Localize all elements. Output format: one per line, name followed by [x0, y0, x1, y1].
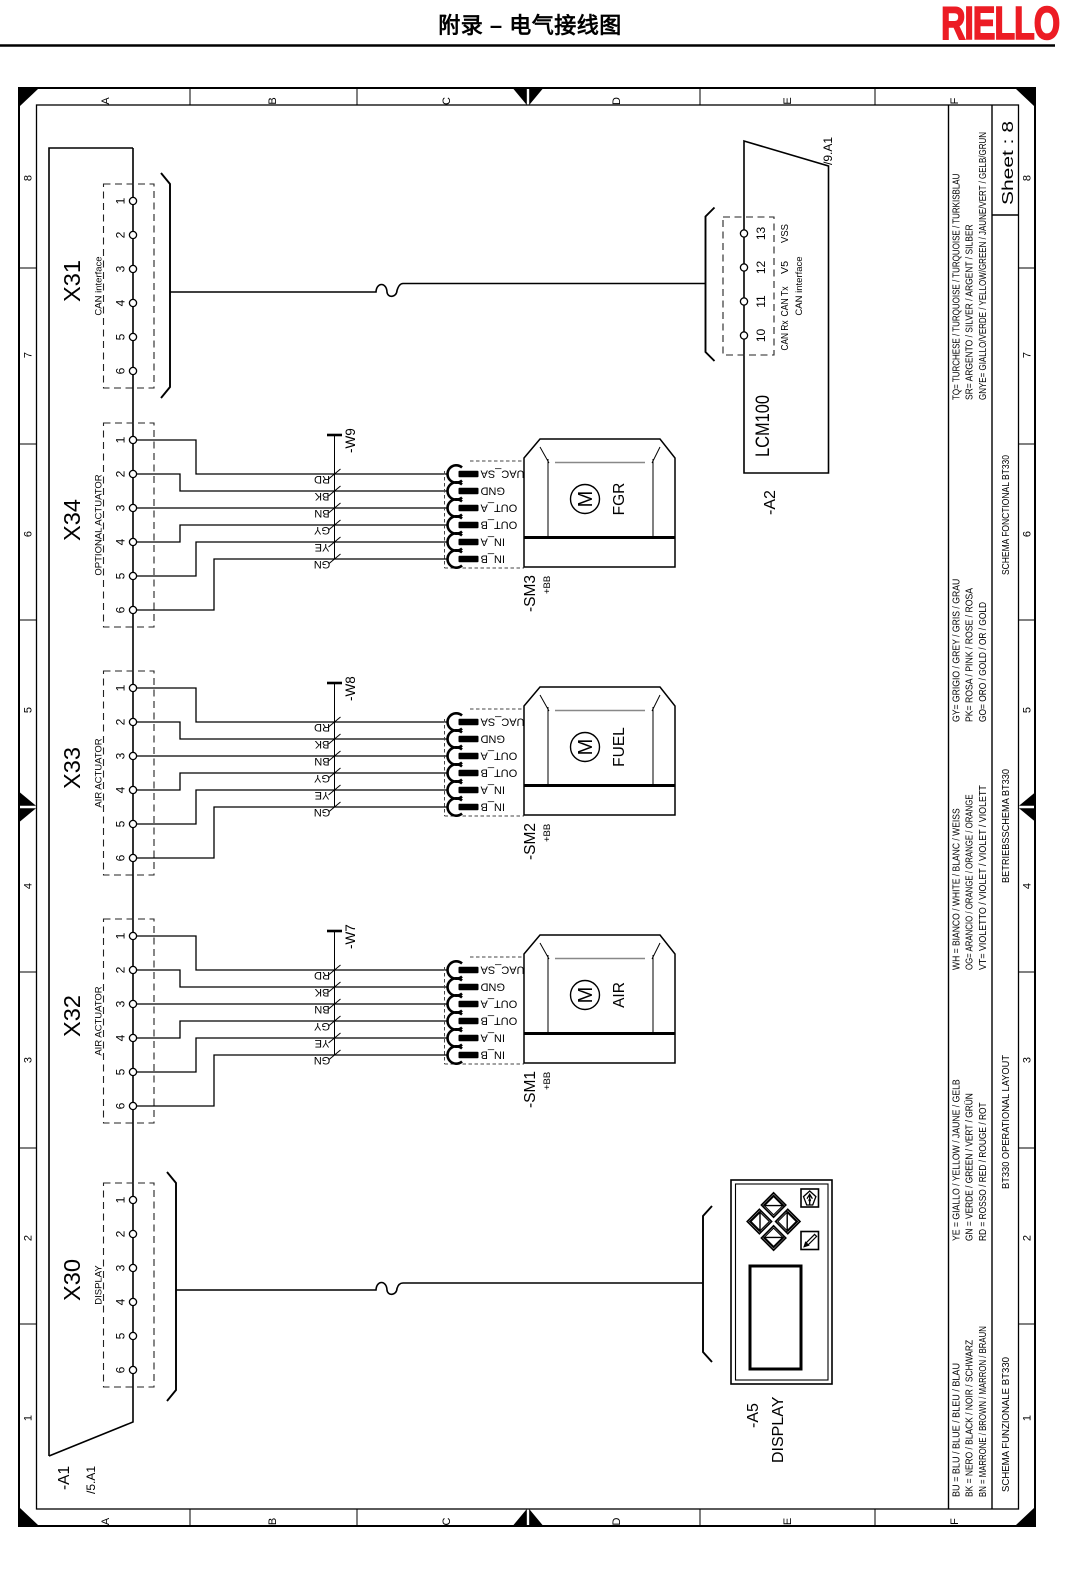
svg-text:M: M: [575, 987, 597, 1004]
svg-text:-SM2: -SM2: [522, 823, 539, 860]
svg-text:X31: X31: [59, 260, 85, 302]
svg-text:YE: YE: [315, 541, 330, 553]
svg-text:GN = VERDE / GREEN / VERT / GR: GN = VERDE / GREEN / VERT / GRÜN: [964, 1093, 976, 1241]
svg-text:5: 5: [114, 1332, 128, 1339]
svg-text:BT330 OPERATIONAL LAYOUT: BT330 OPERATIONAL LAYOUT: [1000, 1054, 1012, 1189]
svg-text:WH = BIANCO / WHITE / BLANC /: WH = BIANCO / WHITE / BLANC / WEISS: [952, 808, 963, 970]
svg-text:GN: GN: [314, 1054, 331, 1066]
svg-text:GND: GND: [480, 733, 505, 745]
svg-text:1: 1: [114, 436, 128, 443]
svg-text:5: 5: [23, 707, 35, 713]
svg-text:BU = BLU / BLUE / BLEU / BLAU: BU = BLU / BLUE / BLEU / BLAU: [952, 1363, 963, 1497]
svg-text:OUT_B: OUT_B: [481, 1015, 518, 1027]
svg-text:4: 4: [114, 299, 128, 306]
svg-text:11: 11: [754, 295, 768, 308]
svg-text:DISPLAY: DISPLAY: [770, 1396, 787, 1463]
svg-text:IN_B: IN_B: [481, 553, 505, 565]
svg-text:-SM3: -SM3: [522, 575, 539, 612]
svg-text:IN_B: IN_B: [481, 1049, 505, 1061]
svg-text:-SM1: -SM1: [522, 1071, 539, 1108]
svg-text:6: 6: [114, 606, 128, 613]
svg-text:3: 3: [114, 504, 128, 511]
svg-text:GND: GND: [480, 981, 505, 993]
svg-text:2: 2: [114, 966, 128, 973]
svg-text:2: 2: [114, 1230, 128, 1237]
svg-text:GY= GRIGIO / GREY / GRIS / GRA: GY= GRIGIO / GREY / GRIS / GRAU: [952, 579, 963, 722]
svg-text:5: 5: [114, 572, 128, 579]
svg-text:8: 8: [1022, 175, 1034, 181]
svg-text:12: 12: [754, 261, 768, 275]
svg-text:D: D: [611, 97, 623, 105]
svg-text:BK: BK: [314, 738, 329, 750]
svg-text:OUT_A: OUT_A: [480, 750, 517, 762]
svg-text:3: 3: [114, 752, 128, 759]
svg-text:2: 2: [114, 470, 128, 477]
svg-text:E: E: [782, 97, 794, 104]
svg-text:8: 8: [23, 175, 35, 181]
svg-text:-A5: -A5: [745, 1403, 762, 1428]
svg-text:GY: GY: [313, 1020, 330, 1032]
svg-text:+BB: +BB: [542, 576, 553, 594]
svg-text:5: 5: [114, 820, 128, 827]
svg-text:IN_A: IN_A: [480, 784, 505, 796]
svg-text:1: 1: [23, 1415, 35, 1421]
svg-text:Sheet : 8: Sheet : 8: [1000, 121, 1017, 205]
svg-text:IN_A: IN_A: [480, 536, 505, 548]
svg-text:B: B: [267, 1518, 279, 1525]
svg-text:OUT_B: OUT_B: [481, 519, 518, 531]
svg-text:4: 4: [114, 538, 128, 545]
svg-text:10: 10: [754, 329, 768, 343]
svg-text:VT= VIOLETTO / VIOLET / VIOLET: VT= VIOLETTO / VIOLET / VIOLET / VIOLETT: [978, 785, 989, 970]
svg-text:VSS: VSS: [779, 224, 791, 243]
svg-text:M: M: [575, 491, 597, 508]
svg-text:X30: X30: [59, 1259, 85, 1301]
svg-text:SCHEMA FONCTIONAL BT330: SCHEMA FONCTIONAL BT330: [1000, 455, 1012, 575]
svg-text:1: 1: [114, 684, 128, 691]
svg-text:F: F: [949, 1518, 961, 1525]
svg-text:GO= ORO / GOLD / OR / GOLD: GO= ORO / GOLD / OR / GOLD: [978, 602, 989, 722]
svg-text:-A1: -A1: [56, 1466, 73, 1490]
svg-text:5: 5: [114, 333, 128, 340]
svg-text:SR= ARGENTO / SILVER / ARGENT: SR= ARGENTO / SILVER / ARGENT / SILBER: [965, 224, 976, 400]
svg-text:X34: X34: [59, 499, 85, 541]
svg-text:GY: GY: [313, 772, 330, 784]
svg-text:GN: GN: [314, 806, 331, 818]
svg-text:GNYE= GIALLO/VERDE / YELLOW/GR: GNYE= GIALLO/VERDE / YELLOW/GREEN / JAUN…: [978, 132, 989, 400]
svg-text:13: 13: [754, 227, 768, 241]
svg-text:X33: X33: [59, 747, 85, 789]
svg-text:RD: RD: [314, 473, 330, 485]
svg-text:1: 1: [114, 197, 128, 204]
svg-text:UAC_SA: UAC_SA: [480, 964, 525, 976]
svg-text:6: 6: [1022, 531, 1034, 537]
svg-text:-W8: -W8: [343, 676, 358, 701]
svg-text:6: 6: [114, 367, 128, 374]
svg-text:OUT_B: OUT_B: [481, 767, 518, 779]
svg-text:6: 6: [114, 1366, 128, 1373]
svg-text:6: 6: [114, 854, 128, 861]
svg-text:-A2: -A2: [762, 490, 779, 515]
svg-text:IN_A: IN_A: [480, 1032, 505, 1044]
svg-text:6: 6: [23, 531, 35, 537]
svg-text:5: 5: [114, 1068, 128, 1075]
svg-text:BN: BN: [314, 507, 329, 519]
svg-text:UAC_SA: UAC_SA: [480, 716, 525, 728]
svg-text:7: 7: [1022, 352, 1034, 358]
svg-text:AIR ACTUATOR: AIR ACTUATOR: [94, 738, 105, 807]
svg-text:OUT_A: OUT_A: [480, 998, 517, 1010]
svg-text:+BB: +BB: [542, 824, 553, 842]
svg-text:CAN interface: CAN interface: [794, 256, 805, 315]
svg-text:A: A: [100, 97, 112, 105]
svg-text:AIR: AIR: [611, 982, 628, 1008]
svg-text:1: 1: [114, 932, 128, 939]
svg-text:GY: GY: [313, 524, 330, 536]
svg-text:BK: BK: [314, 490, 329, 502]
svg-text:-W7: -W7: [343, 924, 358, 949]
svg-text:BN = MARRONE / BROWN / MARRON: BN = MARRONE / BROWN / MARRON / BRAUN: [978, 1326, 989, 1497]
svg-text:OPTIONAL ACTUATOR: OPTIONAL ACTUATOR: [94, 474, 105, 575]
svg-text:2: 2: [114, 718, 128, 725]
svg-text:/5.A1: /5.A1: [84, 1466, 98, 1494]
svg-text:+BB: +BB: [542, 1072, 553, 1090]
svg-text:/9.A1: /9.A1: [821, 137, 835, 165]
svg-text:-W9: -W9: [343, 428, 358, 453]
svg-text:6: 6: [114, 1102, 128, 1109]
svg-text:IN_B: IN_B: [481, 801, 505, 813]
svg-text:RD: RD: [314, 721, 330, 733]
svg-text:3: 3: [1022, 1057, 1034, 1063]
svg-text:7: 7: [23, 352, 35, 358]
svg-text:RD = ROSSO / RED / ROUGE / ROT: RD = ROSSO / RED / ROUGE / ROT: [978, 1102, 989, 1241]
svg-text:BK: BK: [314, 986, 329, 998]
svg-text:X32: X32: [59, 995, 85, 1037]
svg-text:YE: YE: [315, 1037, 330, 1049]
svg-text:BK = NERO / BLACK / NOIR / SCH: BK = NERO / BLACK / NOIR / SCHWARZ: [965, 1340, 976, 1497]
svg-text:DISPLAY: DISPLAY: [94, 1265, 105, 1305]
svg-text:F: F: [949, 97, 961, 104]
svg-text:A: A: [100, 1517, 112, 1525]
svg-text:UAC_SA: UAC_SA: [480, 468, 525, 480]
svg-text:AIR ACTUATOR: AIR ACTUATOR: [94, 986, 105, 1055]
svg-text:FUEL: FUEL: [611, 727, 628, 767]
svg-text:GND: GND: [480, 485, 505, 497]
svg-text:FGR: FGR: [611, 483, 628, 516]
svg-text:BETRIEBSSCHEMA BT330: BETRIEBSSCHEMA BT330: [1000, 769, 1012, 883]
svg-text:OUT_A: OUT_A: [480, 502, 517, 514]
svg-text:RIELLO: RIELLO: [941, 0, 1059, 49]
svg-text:B: B: [267, 97, 279, 104]
svg-text:C: C: [441, 1517, 453, 1525]
svg-text:1: 1: [114, 1196, 128, 1203]
svg-text:CAN Rx: CAN Rx: [779, 320, 791, 351]
svg-text:GN: GN: [314, 558, 331, 570]
svg-text:3: 3: [23, 1057, 35, 1063]
svg-text:4: 4: [114, 1298, 128, 1305]
svg-text:4: 4: [114, 786, 128, 793]
svg-text:E: E: [782, 1518, 794, 1525]
svg-text:V5: V5: [779, 261, 791, 274]
svg-text:2: 2: [23, 1235, 35, 1241]
svg-text:BN: BN: [314, 1003, 329, 1015]
svg-text:YE: YE: [315, 789, 330, 801]
svg-text:3: 3: [114, 265, 128, 272]
svg-text:OG= ARANCIO / ORANGE / ORANGE: OG= ARANCIO / ORANGE / ORANGE / ORANGE: [965, 794, 976, 970]
svg-text:CAN Tx: CAN Tx: [779, 286, 791, 317]
svg-text:CAN interface: CAN interface: [94, 256, 105, 315]
svg-text:3: 3: [114, 1000, 128, 1007]
svg-text:YE = GIALLO / YELLOW / JAUNE /: YE = GIALLO / YELLOW / JAUNE / GELB: [952, 1079, 963, 1241]
svg-text:4: 4: [23, 883, 35, 889]
svg-text:4: 4: [1022, 883, 1034, 889]
svg-text:BN: BN: [314, 755, 329, 767]
svg-text:D: D: [611, 1517, 623, 1525]
svg-text:2: 2: [114, 231, 128, 238]
svg-text:LCM100: LCM100: [752, 395, 774, 457]
svg-text:SCHEMA FUNZIONALE BT330: SCHEMA FUNZIONALE BT330: [1000, 1357, 1012, 1492]
svg-text:1: 1: [1022, 1415, 1034, 1421]
svg-text:M: M: [575, 739, 597, 756]
svg-text:RD: RD: [314, 969, 330, 981]
svg-text:PK= ROSA / PINK / ROSE / ROSA: PK= ROSA / PINK / ROSE / ROSA: [965, 588, 976, 722]
svg-text:5: 5: [1022, 707, 1034, 713]
svg-text:4: 4: [114, 1034, 128, 1041]
svg-text:附录 – 电气接线图: 附录 – 电气接线图: [438, 13, 621, 38]
svg-text:3: 3: [114, 1264, 128, 1271]
svg-text:TQ= TURCHESE / TURQUOISE / TUR: TQ= TURCHESE / TURQUOISE / TURQUOISE / T…: [952, 174, 963, 400]
svg-text:C: C: [441, 97, 453, 105]
svg-text:2: 2: [1022, 1235, 1034, 1241]
